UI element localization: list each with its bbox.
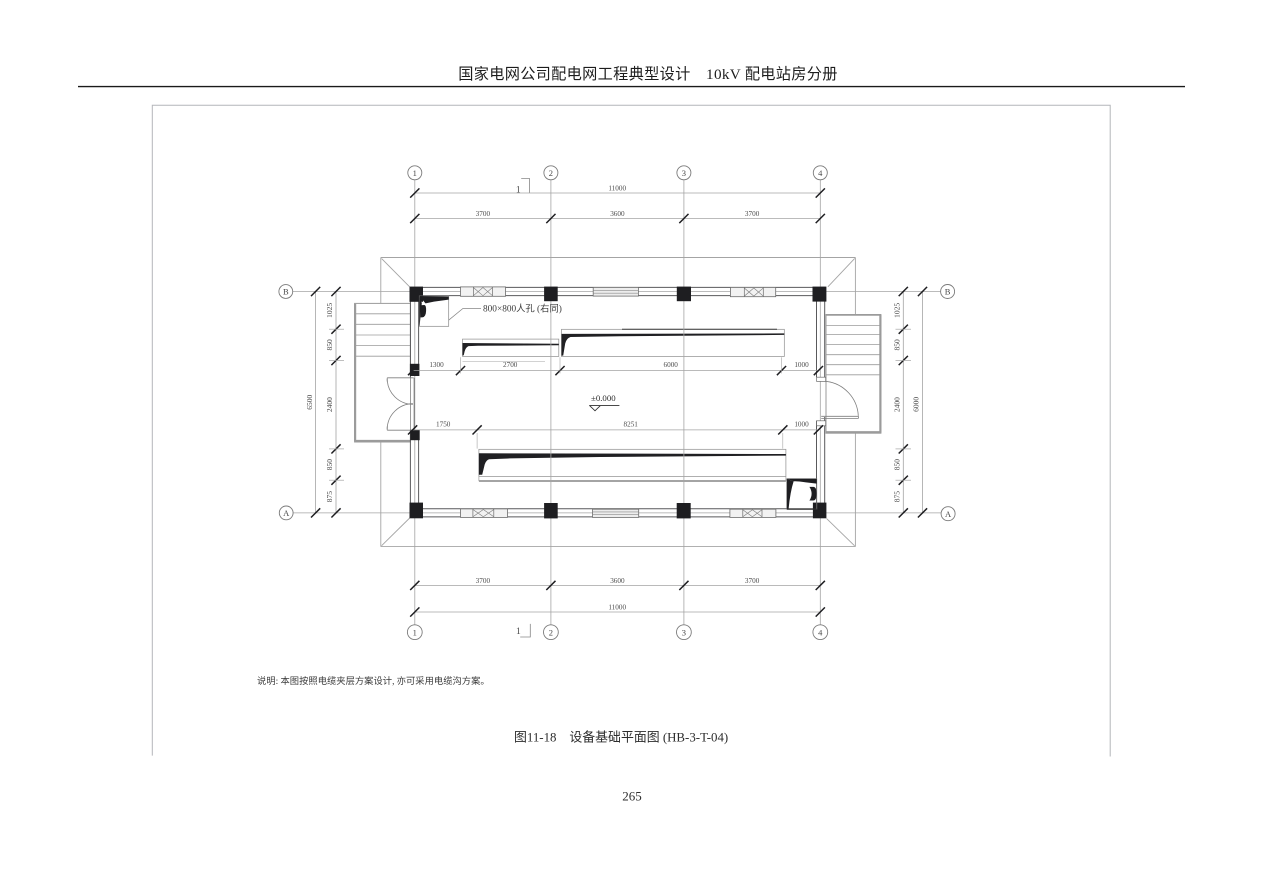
svg-text:4: 4 xyxy=(818,168,823,178)
svg-text:1: 1 xyxy=(516,627,521,637)
svg-text:4: 4 xyxy=(818,627,823,637)
svg-text:6000: 6000 xyxy=(912,397,921,412)
svg-text:3700: 3700 xyxy=(745,210,760,218)
svg-text:1000: 1000 xyxy=(794,361,809,369)
svg-text:850: 850 xyxy=(325,339,334,351)
svg-text:11000: 11000 xyxy=(608,603,626,611)
svg-text:3: 3 xyxy=(682,627,686,637)
svg-text:2: 2 xyxy=(549,168,553,178)
svg-text:A: A xyxy=(283,508,290,518)
svg-text:6500: 6500 xyxy=(305,395,314,410)
svg-text:1: 1 xyxy=(516,185,521,195)
svg-text:875: 875 xyxy=(893,491,902,503)
svg-text:3700: 3700 xyxy=(476,577,491,585)
svg-text:1: 1 xyxy=(413,627,417,637)
svg-text:850: 850 xyxy=(893,339,902,351)
svg-text:2400: 2400 xyxy=(893,397,902,412)
svg-text:3700: 3700 xyxy=(745,577,760,585)
svg-text:图11-18 设备基础平面图 (HB-3-T-04): 图11-18 设备基础平面图 (HB-3-T-04) xyxy=(514,730,728,745)
svg-text:1300: 1300 xyxy=(429,361,444,369)
svg-text:B: B xyxy=(945,287,951,297)
svg-text:2700: 2700 xyxy=(503,361,518,369)
svg-text:3600: 3600 xyxy=(610,210,625,218)
svg-text:850: 850 xyxy=(893,459,902,471)
svg-text:850: 850 xyxy=(325,459,334,471)
svg-text:2400: 2400 xyxy=(325,397,334,412)
svg-text:2: 2 xyxy=(549,627,553,637)
svg-text:±0.000: ±0.000 xyxy=(591,393,616,403)
svg-text:说明: 本图按照电缆夹层方案设计, 亦可采用电缆沟方案。: 说明: 本图按照电缆夹层方案设计, 亦可采用电缆沟方案。 xyxy=(257,675,490,687)
svg-text:875: 875 xyxy=(325,491,334,503)
svg-text:1025: 1025 xyxy=(893,303,902,318)
svg-text:1750: 1750 xyxy=(436,420,451,428)
svg-text:1000: 1000 xyxy=(794,420,809,428)
svg-text:1025: 1025 xyxy=(325,303,334,318)
svg-text:国家电网公司配电网工程典型设计 10kV 配电站房分册: 国家电网公司配电网工程典型设计 10kV 配电站房分册 xyxy=(458,66,838,83)
svg-text:8251: 8251 xyxy=(624,420,639,428)
svg-text:1: 1 xyxy=(413,168,417,178)
svg-text:3: 3 xyxy=(682,168,686,178)
svg-text:265: 265 xyxy=(622,789,642,804)
svg-text:800×800人孔 (右同): 800×800人孔 (右同) xyxy=(483,302,562,314)
svg-text:B: B xyxy=(283,287,289,297)
svg-text:3700: 3700 xyxy=(476,210,491,218)
svg-text:A: A xyxy=(945,509,952,519)
svg-text:3600: 3600 xyxy=(610,577,625,585)
svg-text:11000: 11000 xyxy=(608,184,626,192)
svg-text:6000: 6000 xyxy=(664,361,679,369)
